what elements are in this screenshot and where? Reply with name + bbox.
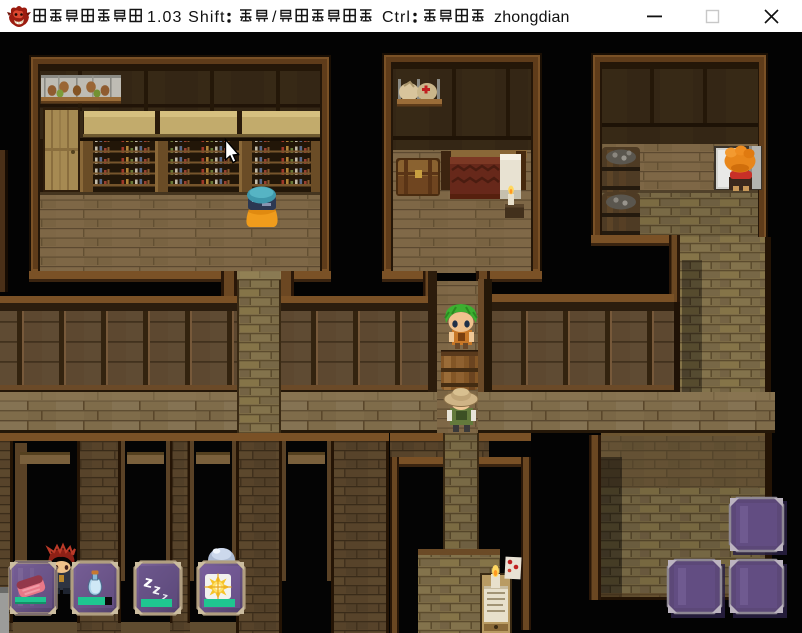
svg-text:1.03 Shift: 1.03 Shift xyxy=(147,9,226,26)
svg-text:zhongdian: zhongdian xyxy=(494,9,570,26)
svg-text:/: / xyxy=(272,9,277,26)
svg-text:Ctrl: Ctrl xyxy=(382,9,411,26)
